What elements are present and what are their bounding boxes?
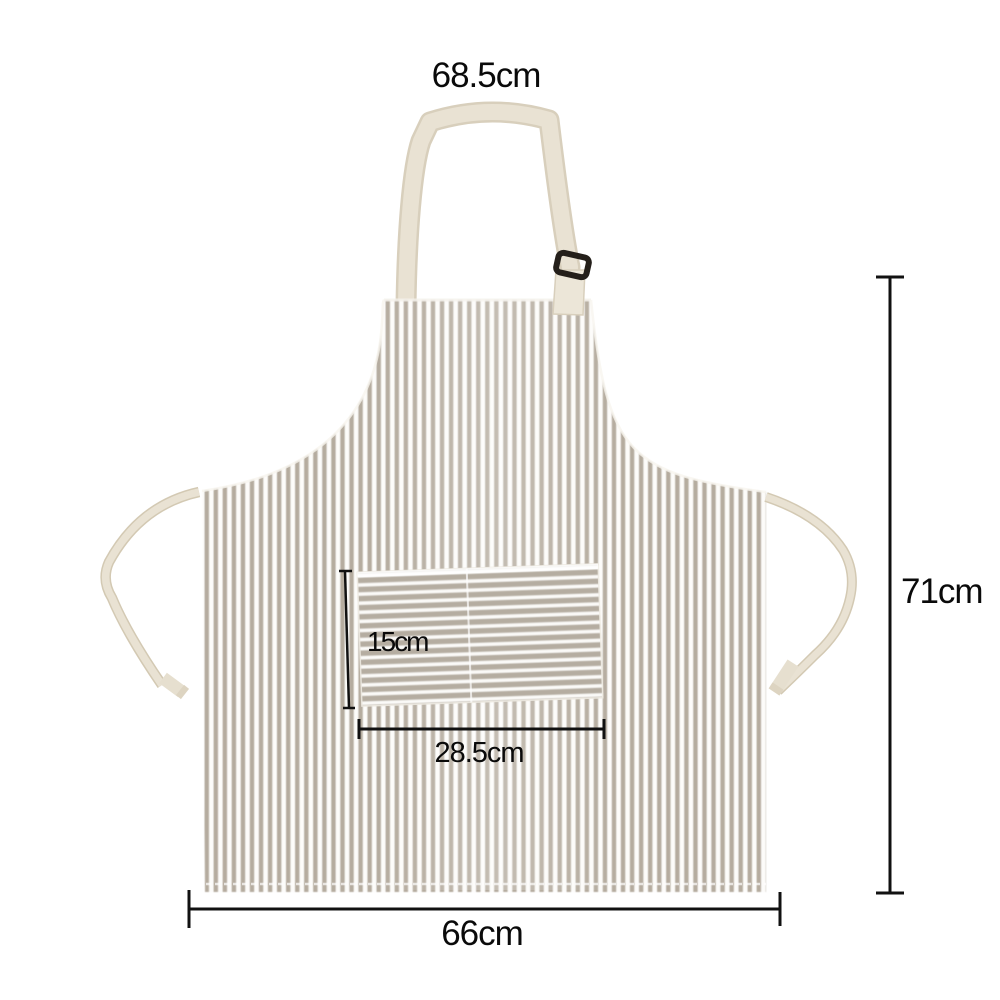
svg-text:66cm: 66cm: [441, 914, 523, 953]
svg-text:15cm: 15cm: [367, 626, 428, 657]
svg-text:28.5cm: 28.5cm: [434, 737, 523, 769]
svg-text:68.5cm: 68.5cm: [432, 56, 541, 95]
svg-text:71cm: 71cm: [901, 572, 983, 611]
